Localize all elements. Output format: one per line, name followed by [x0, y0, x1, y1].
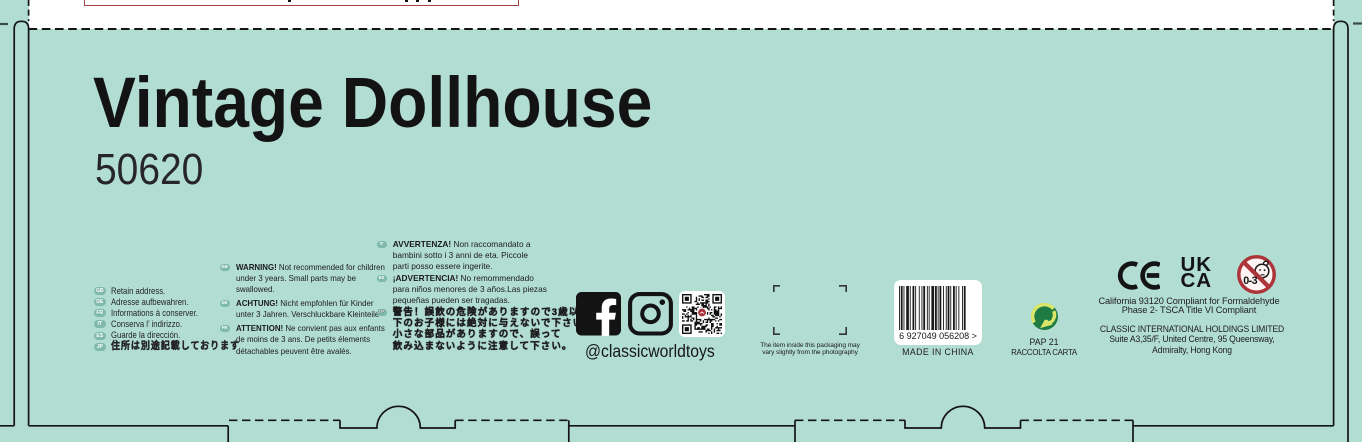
- svg-text:0-3: 0-3: [1243, 275, 1257, 287]
